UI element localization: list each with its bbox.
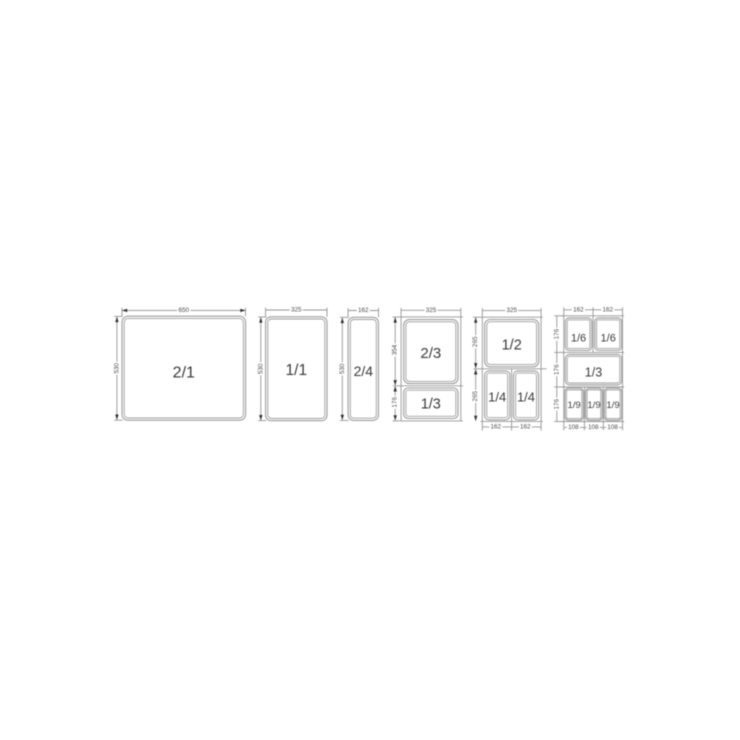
svg-text:1/3: 1/3 bbox=[421, 397, 441, 413]
svg-text:325: 325 bbox=[426, 307, 437, 314]
svg-text:2/3: 2/3 bbox=[420, 345, 441, 362]
svg-text:530: 530 bbox=[113, 363, 120, 374]
svg-text:176: 176 bbox=[553, 364, 560, 375]
svg-text:1/1: 1/1 bbox=[286, 362, 308, 379]
svg-text:108: 108 bbox=[607, 424, 618, 431]
svg-text:650: 650 bbox=[179, 307, 190, 314]
svg-text:2/1: 2/1 bbox=[173, 365, 195, 382]
svg-text:162: 162 bbox=[358, 307, 369, 314]
svg-text:176: 176 bbox=[392, 397, 399, 408]
svg-text:325: 325 bbox=[291, 307, 302, 314]
svg-text:176: 176 bbox=[553, 328, 560, 339]
svg-text:1/9: 1/9 bbox=[567, 400, 580, 411]
svg-text:176: 176 bbox=[553, 398, 560, 409]
svg-text:162: 162 bbox=[603, 306, 614, 313]
svg-text:162: 162 bbox=[573, 306, 584, 313]
svg-text:1/2: 1/2 bbox=[502, 338, 522, 354]
svg-text:265: 265 bbox=[472, 390, 479, 401]
svg-text:162: 162 bbox=[520, 423, 531, 430]
svg-text:1/3: 1/3 bbox=[585, 365, 602, 379]
svg-text:108: 108 bbox=[568, 424, 579, 431]
svg-text:108: 108 bbox=[588, 424, 599, 431]
svg-text:1/4: 1/4 bbox=[517, 390, 535, 405]
svg-text:530: 530 bbox=[339, 363, 346, 374]
svg-text:1/6: 1/6 bbox=[601, 332, 616, 344]
svg-text:1/6: 1/6 bbox=[571, 332, 586, 344]
svg-text:1/9: 1/9 bbox=[606, 400, 619, 411]
svg-text:265: 265 bbox=[472, 336, 479, 347]
svg-text:325: 325 bbox=[506, 307, 517, 314]
svg-text:530: 530 bbox=[257, 363, 264, 374]
svg-text:2/4: 2/4 bbox=[354, 363, 374, 379]
svg-text:1/4: 1/4 bbox=[488, 390, 506, 405]
svg-text:354: 354 bbox=[392, 344, 399, 355]
svg-text:1/9: 1/9 bbox=[587, 400, 600, 411]
svg-text:162: 162 bbox=[491, 423, 502, 430]
